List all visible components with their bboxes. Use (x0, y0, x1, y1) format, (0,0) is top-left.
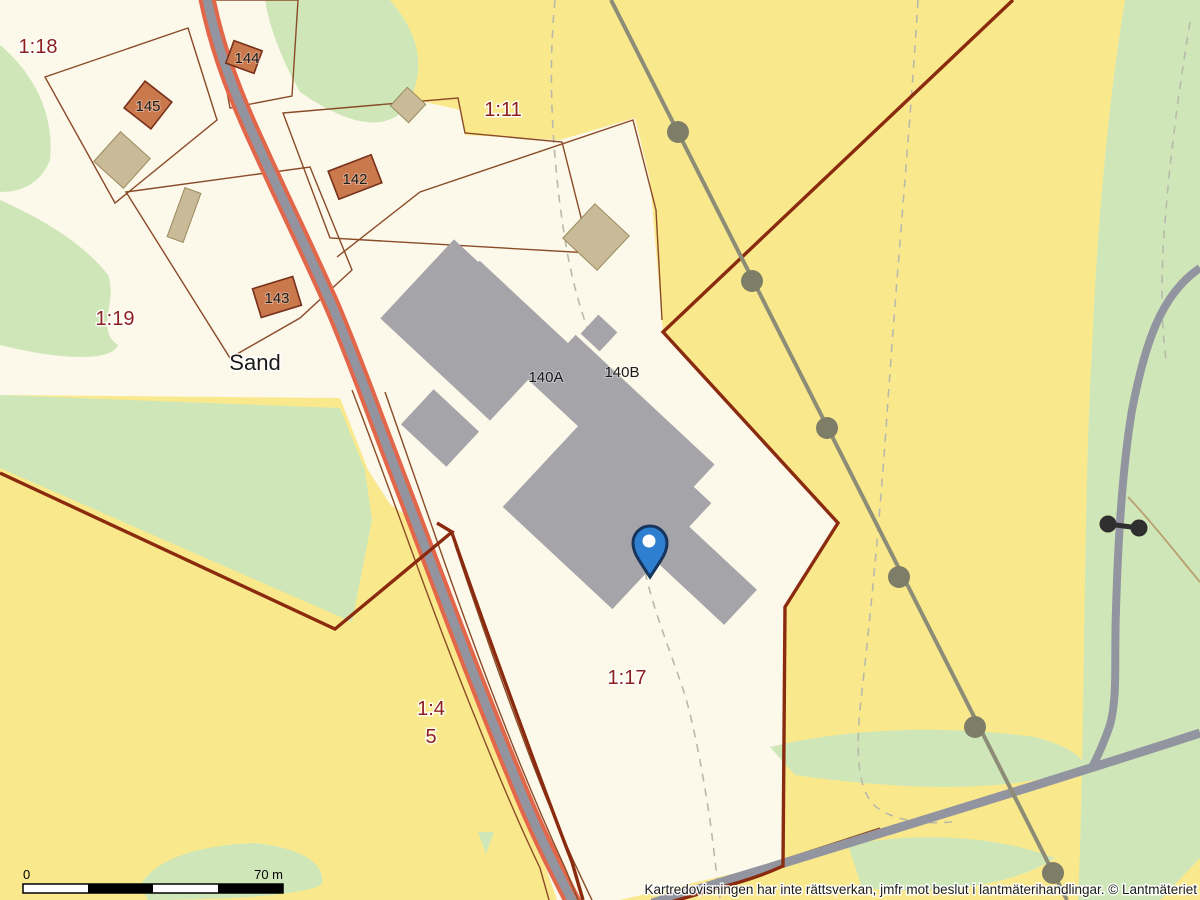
parcel-label-1-17: 1:17 (608, 667, 647, 689)
map-canvas[interactable]: 1:18 1:11 1:19 1:17 1:4 5 Sand 145 144 1… (0, 0, 1200, 900)
scale-bar-end-label: 70 m (254, 867, 283, 882)
map-viewport: 1:18 1:11 1:19 1:17 1:4 5 Sand 145 144 1… (0, 0, 1200, 900)
parcel-label-1-18: 1:18 (19, 36, 58, 58)
building-label-143: 143 (264, 290, 289, 307)
building-label-140A: 140A (528, 369, 563, 386)
attribution-text: Kartredovisningen har inte rättsverkan, … (645, 882, 1198, 897)
building-label-140B: 140B (604, 364, 639, 381)
scale-bar-zero-label: 0 (23, 867, 30, 882)
parcel-label-1-19: 1:19 (96, 308, 135, 330)
parcel-label-1-4: 1:4 (417, 698, 445, 720)
place-label-sand: Sand (229, 350, 280, 375)
parcel-label-1-11: 1:11 (484, 99, 521, 121)
building-label-145: 145 (135, 98, 160, 115)
parcel-label-1-4-sub: 5 (425, 726, 436, 748)
building-label-144: 144 (234, 50, 259, 67)
building-label-142: 142 (342, 171, 367, 188)
pin-hole (643, 535, 656, 548)
